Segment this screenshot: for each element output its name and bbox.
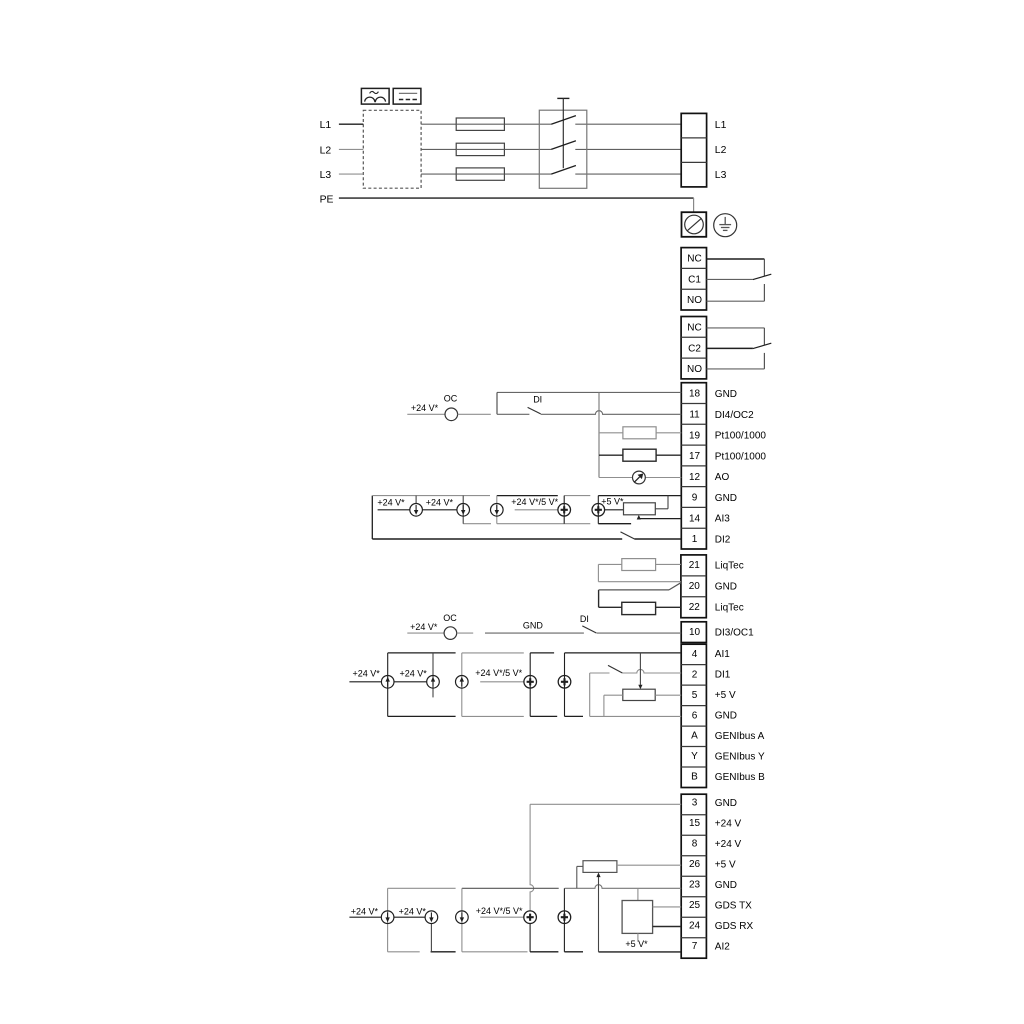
svg-text:+24 V*/5 V*: +24 V*/5 V* — [475, 668, 522, 678]
svg-text:NC: NC — [687, 323, 701, 334]
svg-text:19: 19 — [689, 430, 701, 441]
svg-text:L1: L1 — [320, 120, 332, 131]
svg-text:+24 V*: +24 V* — [411, 403, 439, 413]
svg-text:PE: PE — [320, 194, 334, 205]
svg-text:+24 V*: +24 V* — [410, 622, 438, 632]
svg-text:8: 8 — [692, 838, 698, 849]
svg-text:LiqTec: LiqTec — [715, 602, 744, 613]
svg-text:26: 26 — [689, 859, 701, 870]
svg-text:18: 18 — [689, 389, 701, 400]
svg-text:+24 V: +24 V — [715, 818, 742, 829]
svg-text:OC: OC — [444, 394, 458, 404]
svg-text:L1: L1 — [715, 120, 727, 131]
svg-text:+24 V*: +24 V* — [377, 497, 405, 507]
svg-text:+24 V*/5 V*: +24 V*/5 V* — [511, 497, 558, 507]
svg-text:GND: GND — [715, 389, 737, 400]
svg-text:7: 7 — [692, 941, 698, 952]
svg-text:LiqTec: LiqTec — [715, 560, 744, 571]
svg-text:1: 1 — [692, 534, 698, 545]
svg-text:+5 V: +5 V — [715, 690, 736, 701]
svg-text:Pt100/1000: Pt100/1000 — [715, 451, 767, 462]
svg-text:4: 4 — [692, 649, 698, 660]
svg-text:3: 3 — [692, 797, 698, 808]
svg-text:AI2: AI2 — [715, 941, 730, 952]
svg-text:9: 9 — [692, 493, 698, 504]
svg-text:GENIbus B: GENIbus B — [715, 772, 765, 783]
svg-text:AI1: AI1 — [715, 649, 730, 660]
svg-text:+5 V*: +5 V* — [625, 939, 648, 949]
svg-text:+24 V: +24 V — [715, 839, 742, 850]
svg-text:+5 V: +5 V — [715, 859, 736, 870]
svg-text:GENIbus Y: GENIbus Y — [715, 751, 765, 762]
svg-text:6: 6 — [692, 710, 698, 721]
svg-text:GND: GND — [715, 798, 737, 809]
svg-text:Y: Y — [691, 751, 698, 762]
svg-text:NO: NO — [687, 295, 702, 306]
svg-text:L2: L2 — [715, 145, 727, 156]
svg-text:DI2: DI2 — [715, 535, 731, 546]
svg-text:5: 5 — [692, 690, 698, 701]
svg-text:+24 V*: +24 V* — [400, 668, 428, 678]
svg-text:17: 17 — [689, 451, 701, 462]
svg-text:DI1: DI1 — [715, 670, 731, 681]
svg-text:2: 2 — [692, 669, 698, 680]
svg-text:B: B — [691, 772, 698, 783]
svg-text:L3: L3 — [320, 170, 332, 181]
svg-text:14: 14 — [689, 513, 701, 524]
svg-text:AI3: AI3 — [715, 514, 730, 525]
svg-text:NC: NC — [687, 254, 701, 265]
svg-text:+24 V*: +24 V* — [351, 907, 379, 917]
svg-text:GND: GND — [715, 880, 737, 891]
svg-text:22: 22 — [689, 602, 701, 613]
svg-text:DI: DI — [580, 614, 589, 624]
svg-text:21: 21 — [689, 560, 701, 571]
svg-text:+5 V*: +5 V* — [601, 497, 624, 507]
svg-text:Pt100/1000: Pt100/1000 — [715, 431, 767, 442]
svg-text:DI3/OC1: DI3/OC1 — [715, 627, 754, 638]
svg-text:+24 V*/5 V*: +24 V*/5 V* — [476, 906, 523, 916]
svg-text:+24 V*: +24 V* — [399, 907, 427, 917]
svg-text:DI: DI — [533, 395, 542, 405]
svg-text:L2: L2 — [320, 145, 332, 156]
svg-text:GND: GND — [523, 620, 544, 630]
svg-text:+24 V*: +24 V* — [426, 497, 454, 507]
svg-text:OC: OC — [443, 613, 457, 623]
svg-text:12: 12 — [689, 472, 701, 483]
svg-text:C1: C1 — [688, 274, 701, 285]
svg-text:GDS TX: GDS TX — [715, 900, 752, 911]
svg-text:GDS RX: GDS RX — [715, 921, 754, 932]
svg-text:25: 25 — [689, 900, 701, 911]
svg-text:GND: GND — [715, 581, 737, 592]
svg-text:GND: GND — [715, 711, 737, 722]
svg-text:A: A — [691, 731, 698, 742]
svg-text:NO: NO — [687, 364, 702, 375]
svg-text:DI4/OC2: DI4/OC2 — [715, 410, 754, 421]
svg-text:23: 23 — [689, 879, 701, 890]
svg-text:GND: GND — [715, 493, 737, 504]
svg-text:GENIbus A: GENIbus A — [715, 731, 765, 742]
svg-text:20: 20 — [689, 581, 701, 592]
svg-text:24: 24 — [689, 920, 701, 931]
svg-text:C2: C2 — [688, 343, 701, 354]
svg-text:L3: L3 — [715, 170, 727, 181]
svg-text:11: 11 — [689, 409, 700, 420]
svg-text:AO: AO — [715, 472, 730, 483]
svg-text:10: 10 — [689, 627, 701, 638]
svg-text:+24 V*: +24 V* — [353, 668, 381, 678]
svg-text:15: 15 — [689, 818, 701, 829]
